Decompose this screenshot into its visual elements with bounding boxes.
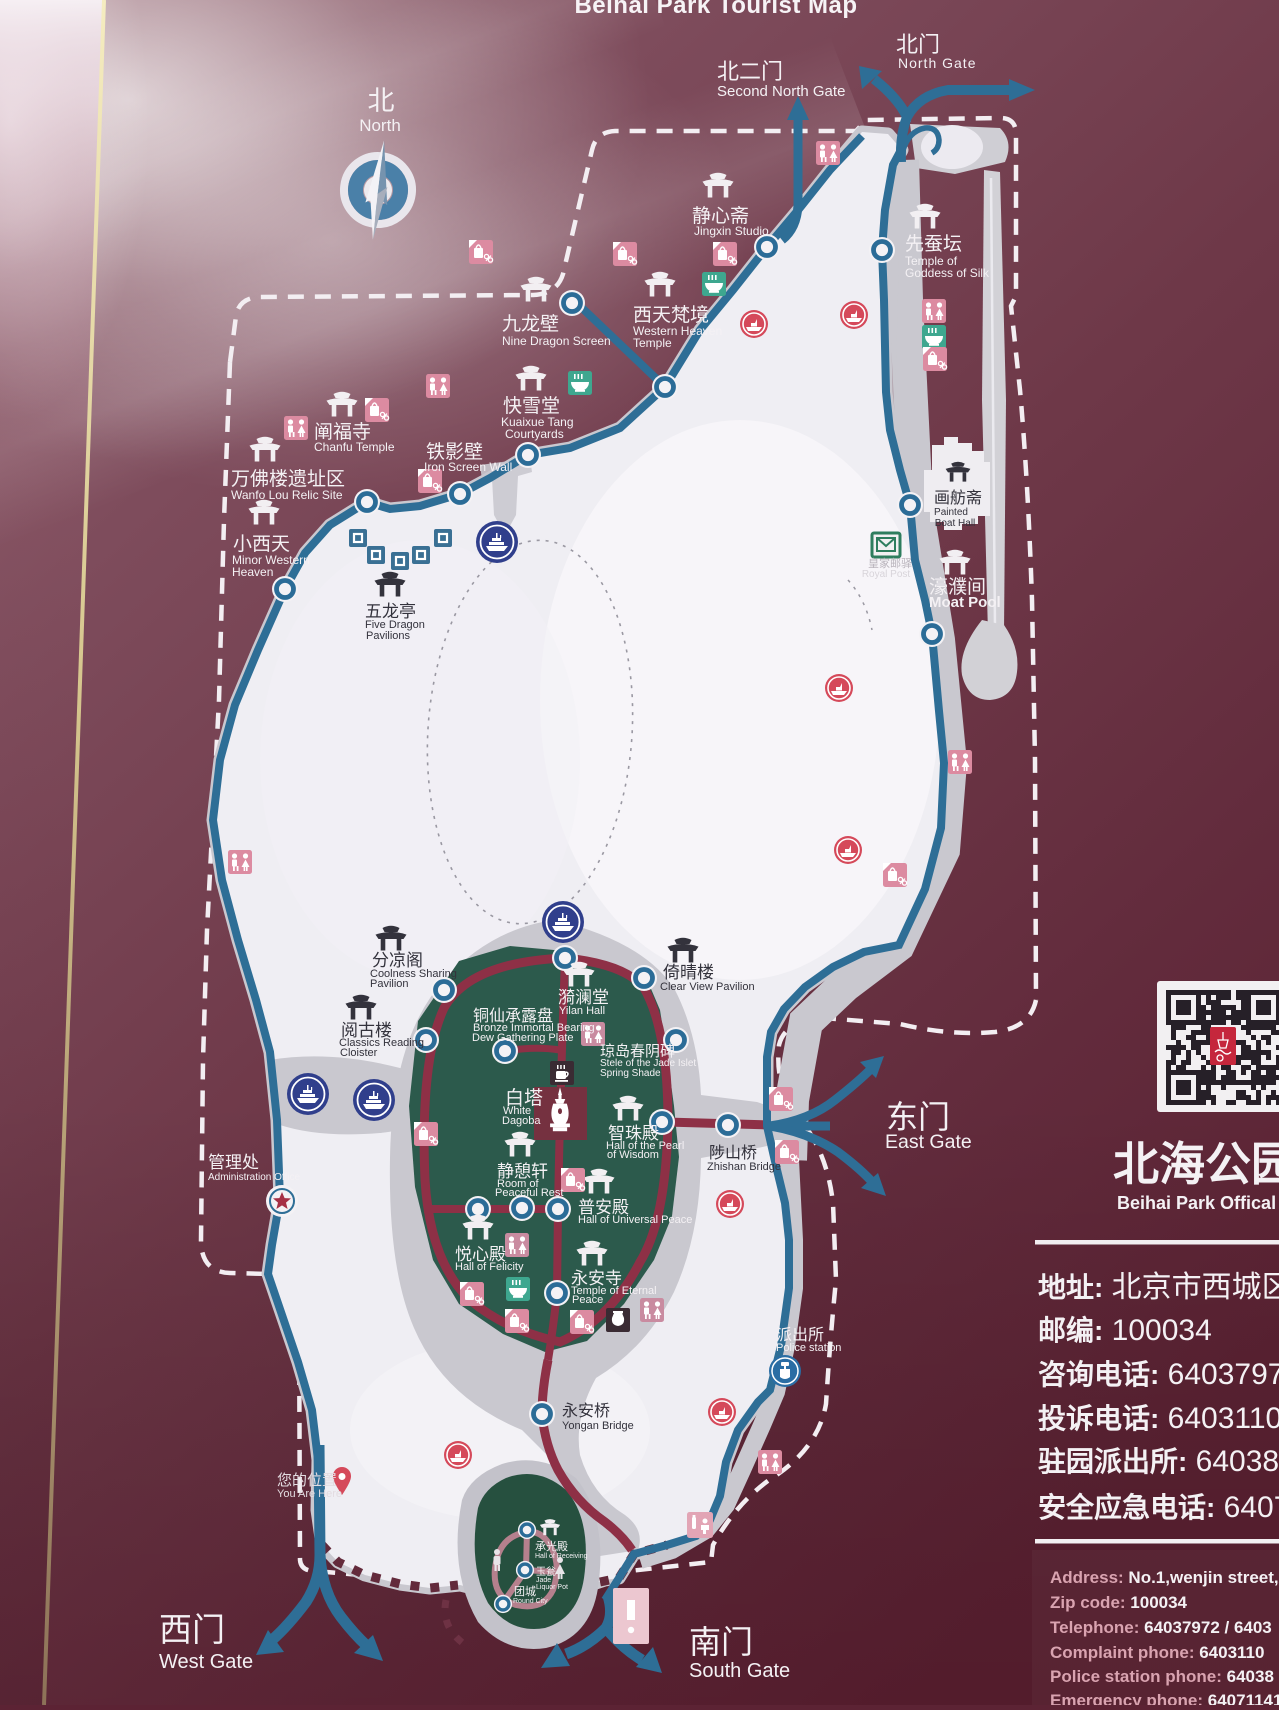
svg-text:Hall of Receiving: Hall of Receiving: [535, 1553, 588, 1560]
svg-text:East Gate: East Gate: [885, 1131, 972, 1153]
svg-text:Moat Pool: Moat Pool: [929, 594, 1001, 611]
svg-text:Cloister: Cloister: [340, 1047, 378, 1059]
svg-text:倚晴楼: 倚晴楼: [663, 963, 714, 982]
svg-text:North: North: [359, 116, 401, 135]
svg-text:Yongan Bridge: Yongan Bridge: [562, 1420, 634, 1432]
svg-text:Courtyards: Courtyards: [505, 427, 564, 441]
svg-text:Hall of Felicity: Hall of Felicity: [455, 1261, 524, 1273]
svg-text:Second North Gate: Second North Gate: [717, 83, 845, 100]
svg-text:Liquor Pot: Liquor Pot: [536, 1584, 568, 1591]
svg-text:Round City: Round City: [513, 1598, 548, 1605]
svg-text:安全应急电话: 64071: 安全应急电话: 64071: [1038, 1491, 1279, 1524]
svg-text:Temple: Temple: [633, 336, 672, 350]
svg-text:Dagoba: Dagoba: [502, 1115, 541, 1127]
svg-text:Nine Dragon Screen: Nine Dragon Screen: [502, 334, 611, 348]
svg-text:承光殿: 承光殿: [535, 1539, 568, 1553]
svg-text:投诉电话: 64031102: 投诉电话: 64031102: [1038, 1402, 1279, 1435]
svg-text:Emergency phone: 64071141: Emergency phone: 64071141: [1050, 1691, 1279, 1705]
svg-text:驻园派出所: 64038090: 驻园派出所: 64038090: [1038, 1445, 1279, 1478]
svg-text:北门: 北门: [896, 32, 940, 57]
svg-text:Wanfo Lou Relic Site: Wanfo Lou Relic Site: [231, 488, 343, 502]
svg-text:Clear View Pavilion: Clear View Pavilion: [660, 981, 755, 993]
svg-text:Yilan Hall: Yilan Hall: [559, 1005, 605, 1017]
svg-text:North Gate: North Gate: [898, 55, 976, 71]
svg-text:小西天: 小西天: [233, 533, 290, 555]
svg-text:Pavilions: Pavilions: [366, 630, 411, 642]
svg-text:皇家邮驿: 皇家邮驿: [868, 556, 912, 570]
svg-text:Administration Office: Administration Office: [208, 1172, 301, 1183]
svg-text:Peaceful Rest: Peaceful Rest: [495, 1187, 563, 1199]
svg-text:Chanfu Temple: Chanfu Temple: [314, 440, 395, 454]
svg-text:西门: 西门: [159, 1611, 225, 1648]
svg-text:咨询电话: 64037972: 咨询电话: 64037972: [1038, 1358, 1279, 1391]
svg-text:West Gate: West Gate: [159, 1651, 253, 1673]
svg-text:Zip code: 100034: Zip code: 100034: [1050, 1593, 1188, 1612]
svg-text:You Are Here: You Are Here: [277, 1488, 342, 1500]
svg-text:东门: 东门: [886, 1099, 950, 1135]
svg-text:Jade: Jade: [536, 1577, 551, 1584]
svg-text:南门: 南门: [689, 1624, 753, 1660]
svg-text:地址: 北京市西城区文津: 地址: 北京市西城区文津: [1038, 1271, 1279, 1304]
svg-text:Telephone: 64037972 / 6403: Telephone: 64037972 / 6403: [1050, 1618, 1272, 1637]
svg-text:北海公园官方: 北海公园官方: [1113, 1138, 1279, 1190]
svg-text:北二门: 北二门: [717, 59, 783, 84]
svg-text:永安桥: 永安桥: [562, 1402, 610, 1420]
svg-text:北: 北: [368, 86, 395, 116]
svg-text:Beihai Park Offical: Beihai Park Offical: [1117, 1193, 1276, 1213]
svg-text:Beihai Park Tourist Map: Beihai Park Tourist Map: [574, 0, 857, 19]
svg-text:团城: 团城: [514, 1585, 536, 1598]
svg-text:Peace: Peace: [572, 1294, 603, 1306]
svg-text:Complaint phone: 6403110: Complaint phone: 6403110: [1050, 1643, 1264, 1662]
svg-text:Jingxin Studio: Jingxin Studio: [694, 224, 769, 238]
svg-text:Painted: Painted: [934, 507, 968, 518]
svg-text:邮编: 100034: 邮编: 100034: [1038, 1314, 1212, 1347]
svg-text:South Gate: South Gate: [689, 1660, 790, 1682]
svg-text:Heaven: Heaven: [232, 565, 273, 579]
svg-text:Police station phone: 64038: Police station phone: 64038: [1050, 1667, 1274, 1686]
svg-text:Zhishan Bridge: Zhishan Bridge: [707, 1161, 781, 1173]
svg-text:万佛楼遗址区: 万佛楼遗址区: [231, 468, 345, 490]
svg-text:西天梵境: 西天梵境: [633, 304, 709, 326]
svg-text:Hall of Universal Peace: Hall of Universal Peace: [578, 1214, 692, 1226]
svg-text:Iron Screen Wall: Iron Screen Wall: [424, 460, 512, 474]
svg-text:Address: No.1,wenjin street,xi: Address: No.1,wenjin street,xichen: [1050, 1568, 1279, 1587]
svg-text:九龙壁: 九龙壁: [502, 313, 559, 335]
svg-text:of Wisdom: of Wisdom: [607, 1149, 659, 1161]
svg-text:快雪堂: 快雪堂: [503, 395, 560, 417]
svg-text:陟山桥: 陟山桥: [709, 1144, 757, 1162]
svg-text:管理处: 管理处: [208, 1153, 259, 1172]
svg-text:Dew Gathering Plate: Dew Gathering Plate: [472, 1032, 574, 1044]
svg-text:画舫斋: 画舫斋: [934, 489, 982, 507]
svg-text:您的位置: 您的位置: [277, 1472, 337, 1489]
svg-text:Boat Hall: Boat Hall: [935, 518, 976, 529]
svg-text:Police station: Police station: [776, 1342, 841, 1354]
svg-text:Royal Post: Royal Post: [862, 569, 911, 580]
svg-text:Spring Shade: Spring Shade: [600, 1068, 661, 1079]
svg-text:Goddess of Silk: Goddess of Silk: [905, 266, 990, 280]
svg-text:先蚕坛: 先蚕坛: [905, 233, 962, 255]
svg-text:Pavilion: Pavilion: [370, 978, 409, 990]
